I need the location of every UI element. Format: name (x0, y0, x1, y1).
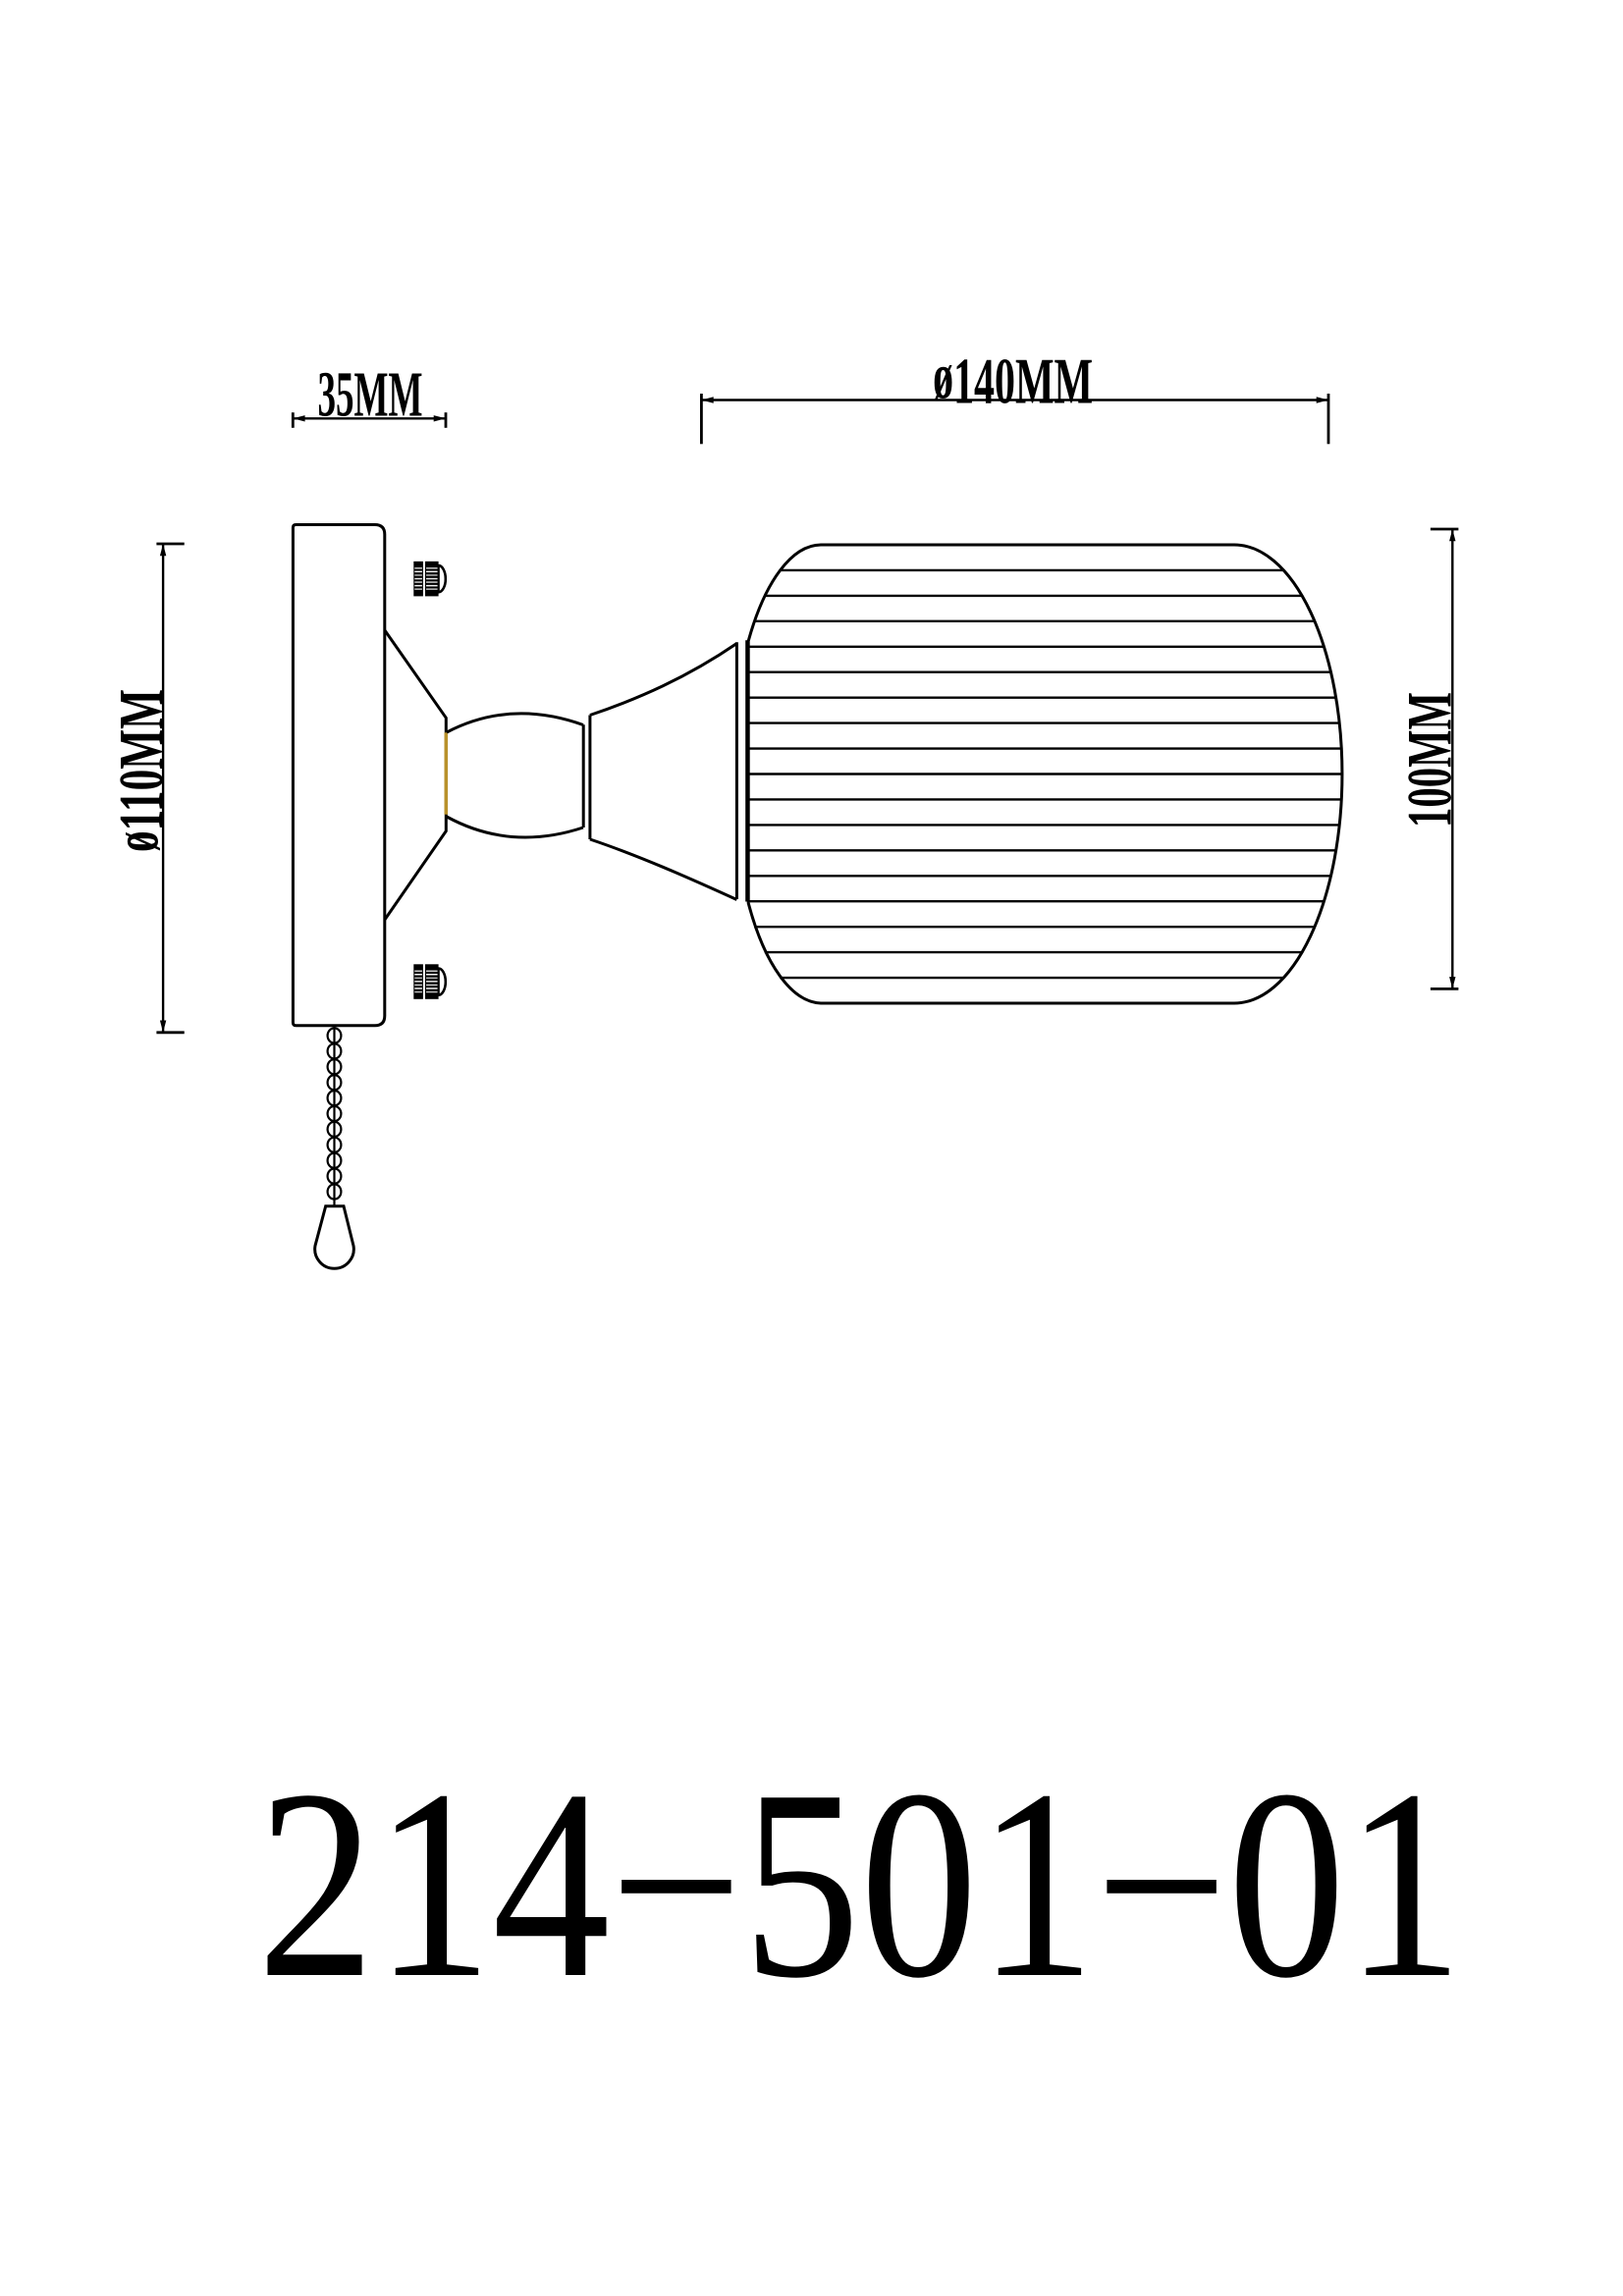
svg-text:214−501−01: 214−501−01 (257, 1734, 1463, 2036)
svg-text:100MM: 100MM (1395, 692, 1466, 828)
svg-text:ø110MM: ø110MM (102, 689, 178, 852)
svg-text:ø140MM: ø140MM (933, 341, 1093, 418)
svg-text:35MM: 35MM (318, 359, 423, 431)
